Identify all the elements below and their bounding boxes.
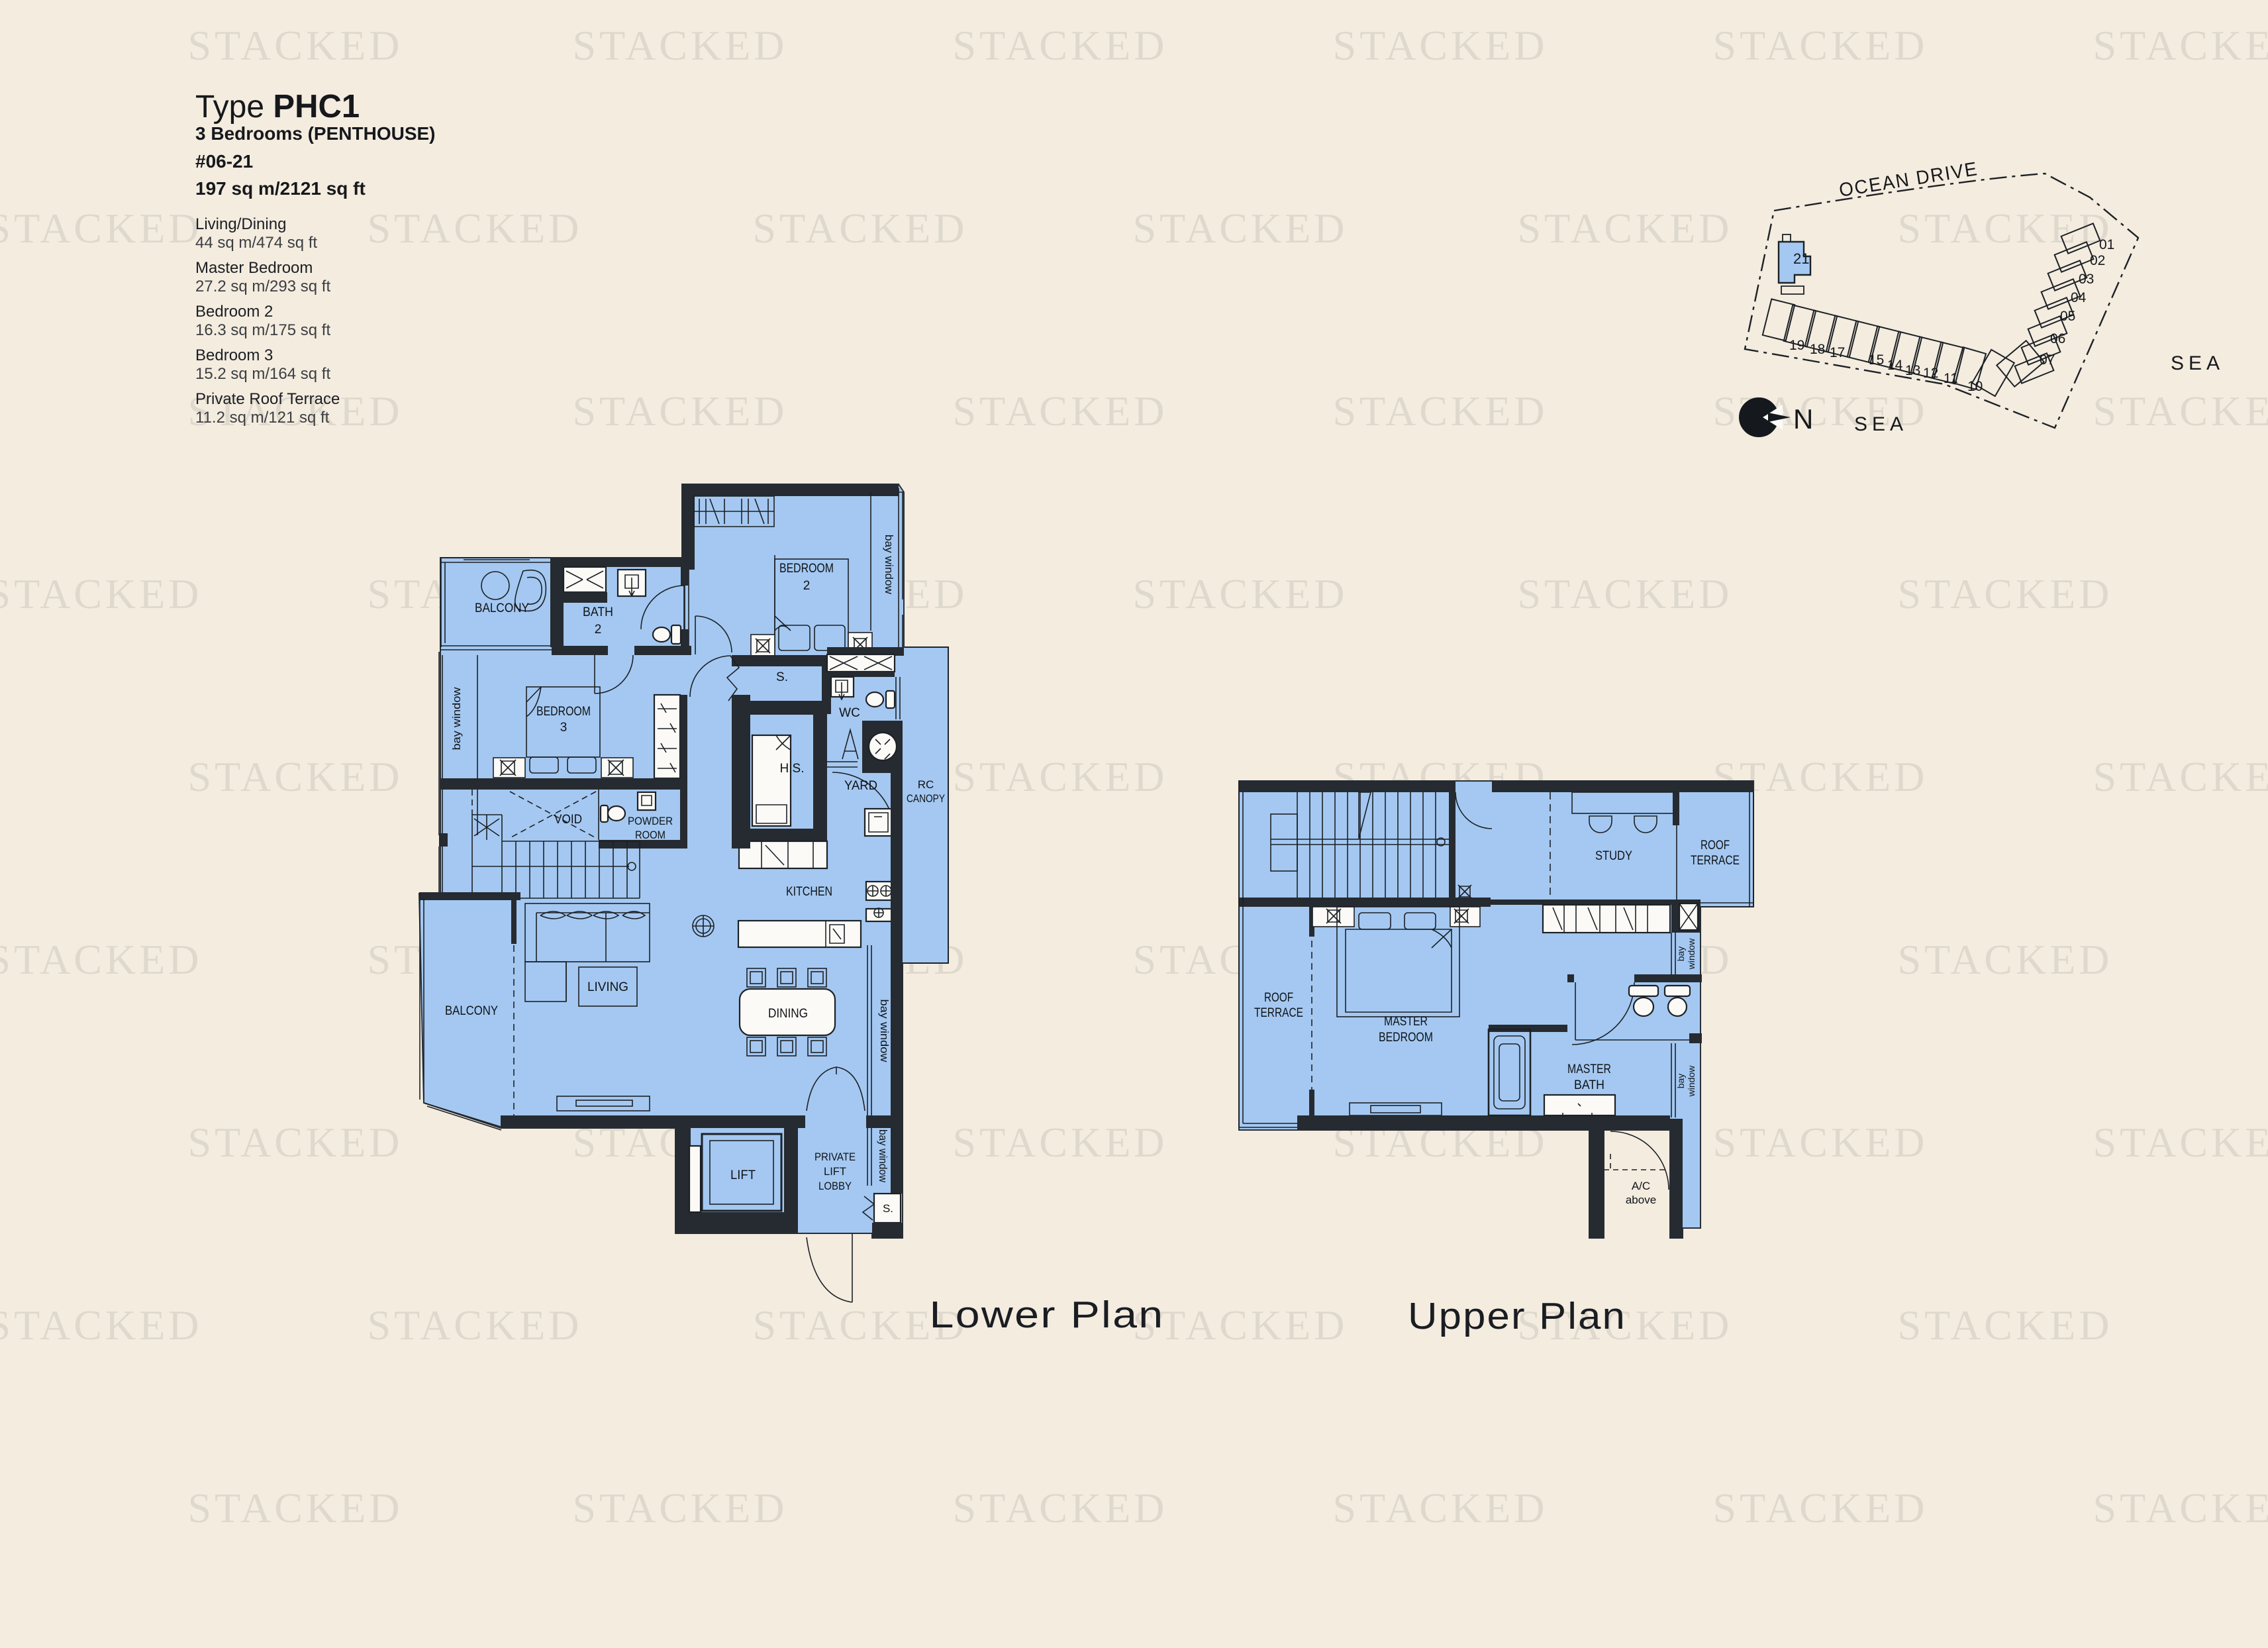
svg-text:CANOPY: CANOPY [907,792,945,805]
svg-text:STACKED: STACKED [0,936,203,983]
svg-text:LIVING: LIVING [587,980,628,994]
svg-text:2: 2 [595,623,602,637]
svg-text:27.2 sq m/293 sq ft: 27.2 sq m/293 sq ft [195,278,330,295]
svg-text:BATH: BATH [583,605,613,619]
svg-text:15.2 sq m/164 sq ft: 15.2 sq m/164 sq ft [195,365,330,383]
svg-text:STACKED: STACKED [2093,1119,2268,1166]
svg-text:STACKED: STACKED [953,753,1168,800]
svg-text:STACKED: STACKED [368,205,583,252]
svg-text:bay: bay [1675,1074,1686,1089]
svg-text:03: 03 [2079,272,2094,287]
svg-text:11.2 sq m/121 sq ft: 11.2 sq m/121 sq ft [195,409,330,427]
svg-text:STACKED: STACKED [1518,570,1733,617]
svg-text:STACKED: STACKED [368,1302,583,1349]
svg-text:window: window [1686,938,1697,970]
svg-text:SEA: SEA [1854,413,1908,435]
svg-text:Upper Plan: Upper Plan [1408,1295,1626,1337]
svg-text:Private Roof Terrace: Private Roof Terrace [195,390,340,408]
svg-text:07: 07 [2040,352,2055,368]
svg-text:01: 01 [2099,237,2114,252]
svg-text:11: 11 [1944,371,1958,386]
svg-text:#06-21: #06-21 [195,151,253,172]
svg-text:12: 12 [1923,366,1938,381]
svg-text:16.3 sq m/175 sq ft: 16.3 sq m/175 sq ft [195,321,330,339]
svg-text:MASTER: MASTER [1567,1062,1611,1076]
svg-text:STACKED: STACKED [1898,1302,2113,1349]
svg-text:ROOF: ROOF [1701,839,1730,852]
svg-text:19: 19 [1789,338,1804,353]
svg-text:STACKED: STACKED [573,1484,788,1531]
svg-text:H.S.: H.S. [780,762,805,776]
svg-text:STACKED: STACKED [188,753,403,800]
svg-text:Bedroom 2: Bedroom 2 [195,303,273,321]
svg-text:STACKED: STACKED [1133,570,1348,617]
svg-text:STACKED: STACKED [1333,1484,1548,1531]
svg-text:SEA: SEA [2171,352,2224,374]
svg-text:STACKED: STACKED [188,22,403,69]
svg-text:S.: S. [883,1202,893,1215]
svg-text:06: 06 [2050,331,2065,346]
svg-text:STACKED: STACKED [2093,22,2268,69]
svg-text:STACKED: STACKED [1898,936,2113,983]
svg-text:STACKED: STACKED [2093,1484,2268,1531]
svg-text:BEDROOM: BEDROOM [536,705,591,719]
svg-text:STACKED: STACKED [0,570,203,617]
svg-text:ROOF: ROOF [1264,991,1293,1005]
svg-text:STACKED: STACKED [953,22,1168,69]
svg-text:BATH: BATH [1574,1078,1604,1092]
svg-text:Bedroom 3: Bedroom 3 [195,346,273,364]
svg-text:TERRACE: TERRACE [1254,1006,1303,1020]
svg-text:15: 15 [1869,352,1884,368]
svg-text:STACKED: STACKED [1333,22,1548,69]
svg-text:RC: RC [918,778,934,791]
svg-text:bay: bay [1675,947,1686,962]
svg-text:STACKED: STACKED [1713,1119,1928,1166]
svg-text:3 Bedrooms (PENTHOUSE): 3 Bedrooms (PENTHOUSE) [195,123,436,144]
svg-text:DINING: DINING [768,1007,808,1021]
svg-text:Type PHC1: Type PHC1 [195,89,360,125]
svg-text:STACKED: STACKED [953,1484,1168,1531]
svg-text:10: 10 [1967,379,1983,394]
svg-text:N: N [1793,403,1813,435]
svg-text:above: above [1626,1194,1656,1206]
svg-text:window: window [1686,1065,1697,1098]
svg-text:POWDER: POWDER [628,815,673,827]
svg-text:STACKED: STACKED [1713,22,1928,69]
svg-text:13: 13 [1905,363,1920,378]
svg-text:17: 17 [1830,345,1845,360]
svg-text:BEDROOM: BEDROOM [1379,1031,1433,1045]
svg-text:STACKED: STACKED [753,205,968,252]
svg-text:STACKED: STACKED [1133,1302,1348,1349]
svg-text:STACKED: STACKED [2093,387,2268,435]
svg-text:bay window: bay window [883,535,895,595]
svg-text:LIFT: LIFT [824,1165,846,1178]
svg-text:Lower Plan: Lower Plan [930,1294,1165,1336]
svg-text:bay window: bay window [878,1000,891,1063]
svg-text:04: 04 [2071,290,2087,305]
svg-text:Master Bedroom: Master Bedroom [195,259,313,277]
svg-text:21: 21 [1793,250,1809,267]
svg-text:LIFT: LIFT [730,1168,756,1182]
svg-text:VOID: VOID [554,813,582,827]
svg-text:A/C: A/C [1632,1180,1650,1192]
svg-text:STACKED: STACKED [1518,205,1733,252]
svg-text:ROOM: ROOM [635,829,666,841]
svg-text:18: 18 [1810,342,1825,357]
svg-text:BALCONY: BALCONY [475,601,529,615]
svg-text:STUDY: STUDY [1595,849,1632,863]
svg-text:YARD: YARD [844,779,877,793]
svg-text:3: 3 [560,721,567,735]
svg-text:TERRACE: TERRACE [1691,854,1740,868]
svg-text:STACKED: STACKED [1713,1484,1928,1531]
svg-text:STACKED: STACKED [188,1119,403,1166]
svg-text:PRIVATE: PRIVATE [814,1151,856,1163]
svg-text:STACKED: STACKED [953,387,1168,435]
svg-text:05: 05 [2060,309,2075,324]
svg-text:STACKED: STACKED [0,1302,203,1349]
svg-text:MASTER: MASTER [1384,1015,1428,1029]
svg-text:STACKED: STACKED [573,387,788,435]
svg-text:WC: WC [839,706,860,720]
svg-text:44 sq m/474 sq ft: 44 sq m/474 sq ft [195,234,317,252]
svg-text:STACKED: STACKED [573,22,788,69]
svg-text:BEDROOM: BEDROOM [779,562,834,576]
svg-text:02: 02 [2090,253,2105,268]
svg-text:STACKED: STACKED [1133,205,1348,252]
svg-text:STACKED: STACKED [1898,570,2113,617]
svg-text:LOBBY: LOBBY [818,1180,852,1192]
svg-text:Living/Dining: Living/Dining [195,215,286,233]
svg-text:14: 14 [1887,358,1903,373]
svg-text:STACKED: STACKED [1333,387,1548,435]
svg-text:STACKED: STACKED [2093,753,2268,800]
svg-text:197 sq m/2121 sq ft: 197 sq m/2121 sq ft [195,178,366,199]
svg-text:S.: S. [776,670,788,684]
svg-text:bay window: bay window [450,687,463,750]
svg-text:KITCHEN: KITCHEN [786,885,832,899]
svg-text:STACKED: STACKED [0,205,203,252]
svg-text:STACKED: STACKED [953,1119,1168,1166]
svg-text:bay window: bay window [877,1129,889,1183]
svg-text:STACKED: STACKED [188,1484,403,1531]
svg-text:2: 2 [803,579,811,593]
svg-text:BALCONY: BALCONY [445,1004,498,1018]
